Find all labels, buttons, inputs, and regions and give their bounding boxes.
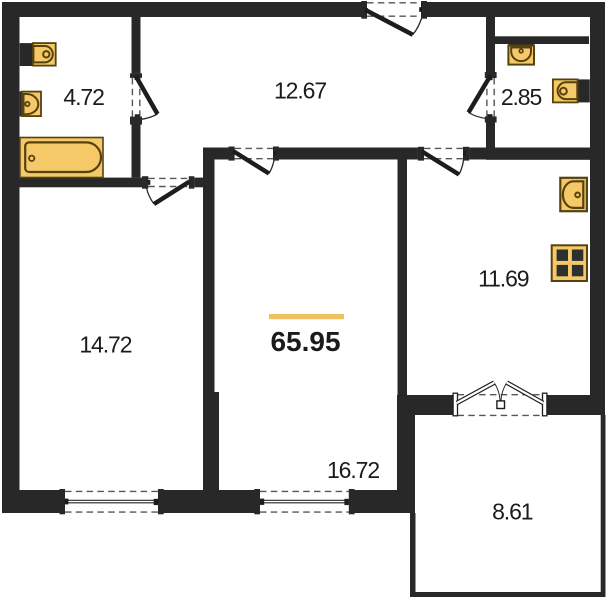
svg-text:16.72: 16.72 xyxy=(327,457,379,483)
svg-text:4.72: 4.72 xyxy=(63,84,104,110)
svg-text:2.85: 2.85 xyxy=(501,84,542,110)
svg-text:14.72: 14.72 xyxy=(79,331,131,357)
svg-text:65.95: 65.95 xyxy=(270,326,340,357)
svg-text:12.67: 12.67 xyxy=(274,78,326,104)
svg-text:8.61: 8.61 xyxy=(492,499,533,525)
svg-text:11.69: 11.69 xyxy=(478,266,529,292)
